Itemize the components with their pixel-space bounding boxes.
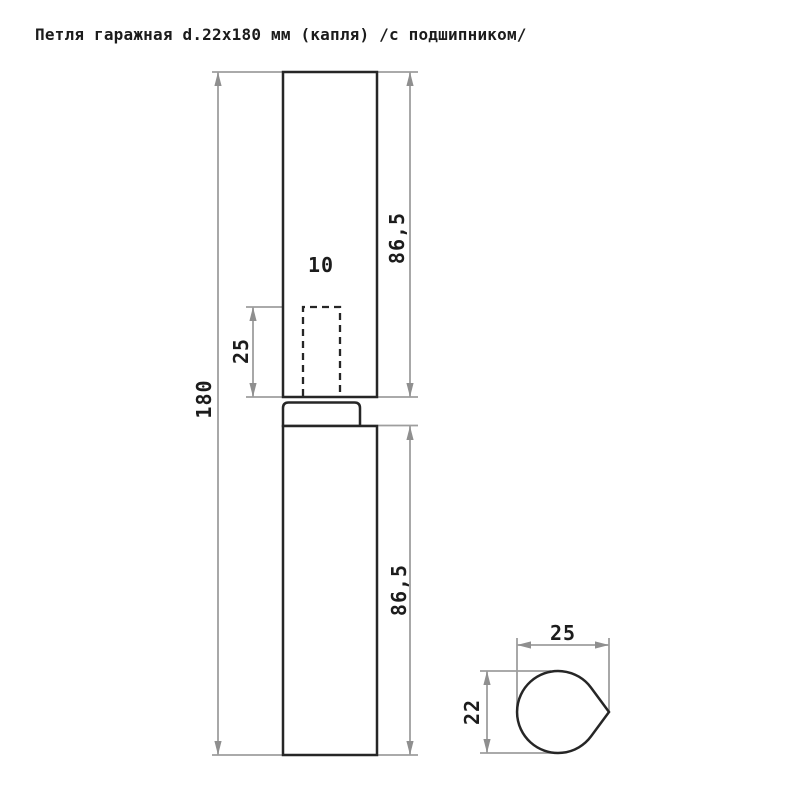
arrow-icon (517, 641, 531, 648)
arrow-icon (249, 383, 256, 397)
arrow-icon (406, 426, 413, 440)
hinge-technical-drawing: 180 86,5 86,5 10 25 25 22 (0, 0, 800, 800)
arrow-icon (406, 741, 413, 755)
arrow-icon (406, 383, 413, 397)
dimension-arrows (214, 72, 609, 755)
dim-upper-leaf-label: 86,5 (385, 212, 409, 264)
arrow-icon (214, 72, 221, 86)
dim-section-width-label: 25 (550, 621, 576, 645)
arrow-icon (595, 641, 609, 648)
dim-lower-leaf-label: 86,5 (387, 564, 411, 616)
lower-leaf (283, 426, 377, 755)
arrow-icon (483, 671, 490, 685)
arrow-icon (406, 72, 413, 86)
dim-total-length-label: 180 (192, 379, 216, 418)
bearing-washer (283, 403, 360, 427)
arrow-icon (249, 307, 256, 321)
dim-section-height-label: 22 (460, 699, 484, 725)
dim-pin-width-label: 10 (308, 253, 334, 277)
dimension-lines (212, 72, 609, 755)
arrow-icon (483, 739, 490, 753)
arrow-icon (214, 741, 221, 755)
teardrop-section (517, 671, 609, 753)
upper-leaf (283, 72, 377, 397)
dimension-labels: 180 86,5 86,5 10 25 25 22 (192, 212, 576, 725)
dim-pin-depth-label: 25 (229, 338, 253, 364)
